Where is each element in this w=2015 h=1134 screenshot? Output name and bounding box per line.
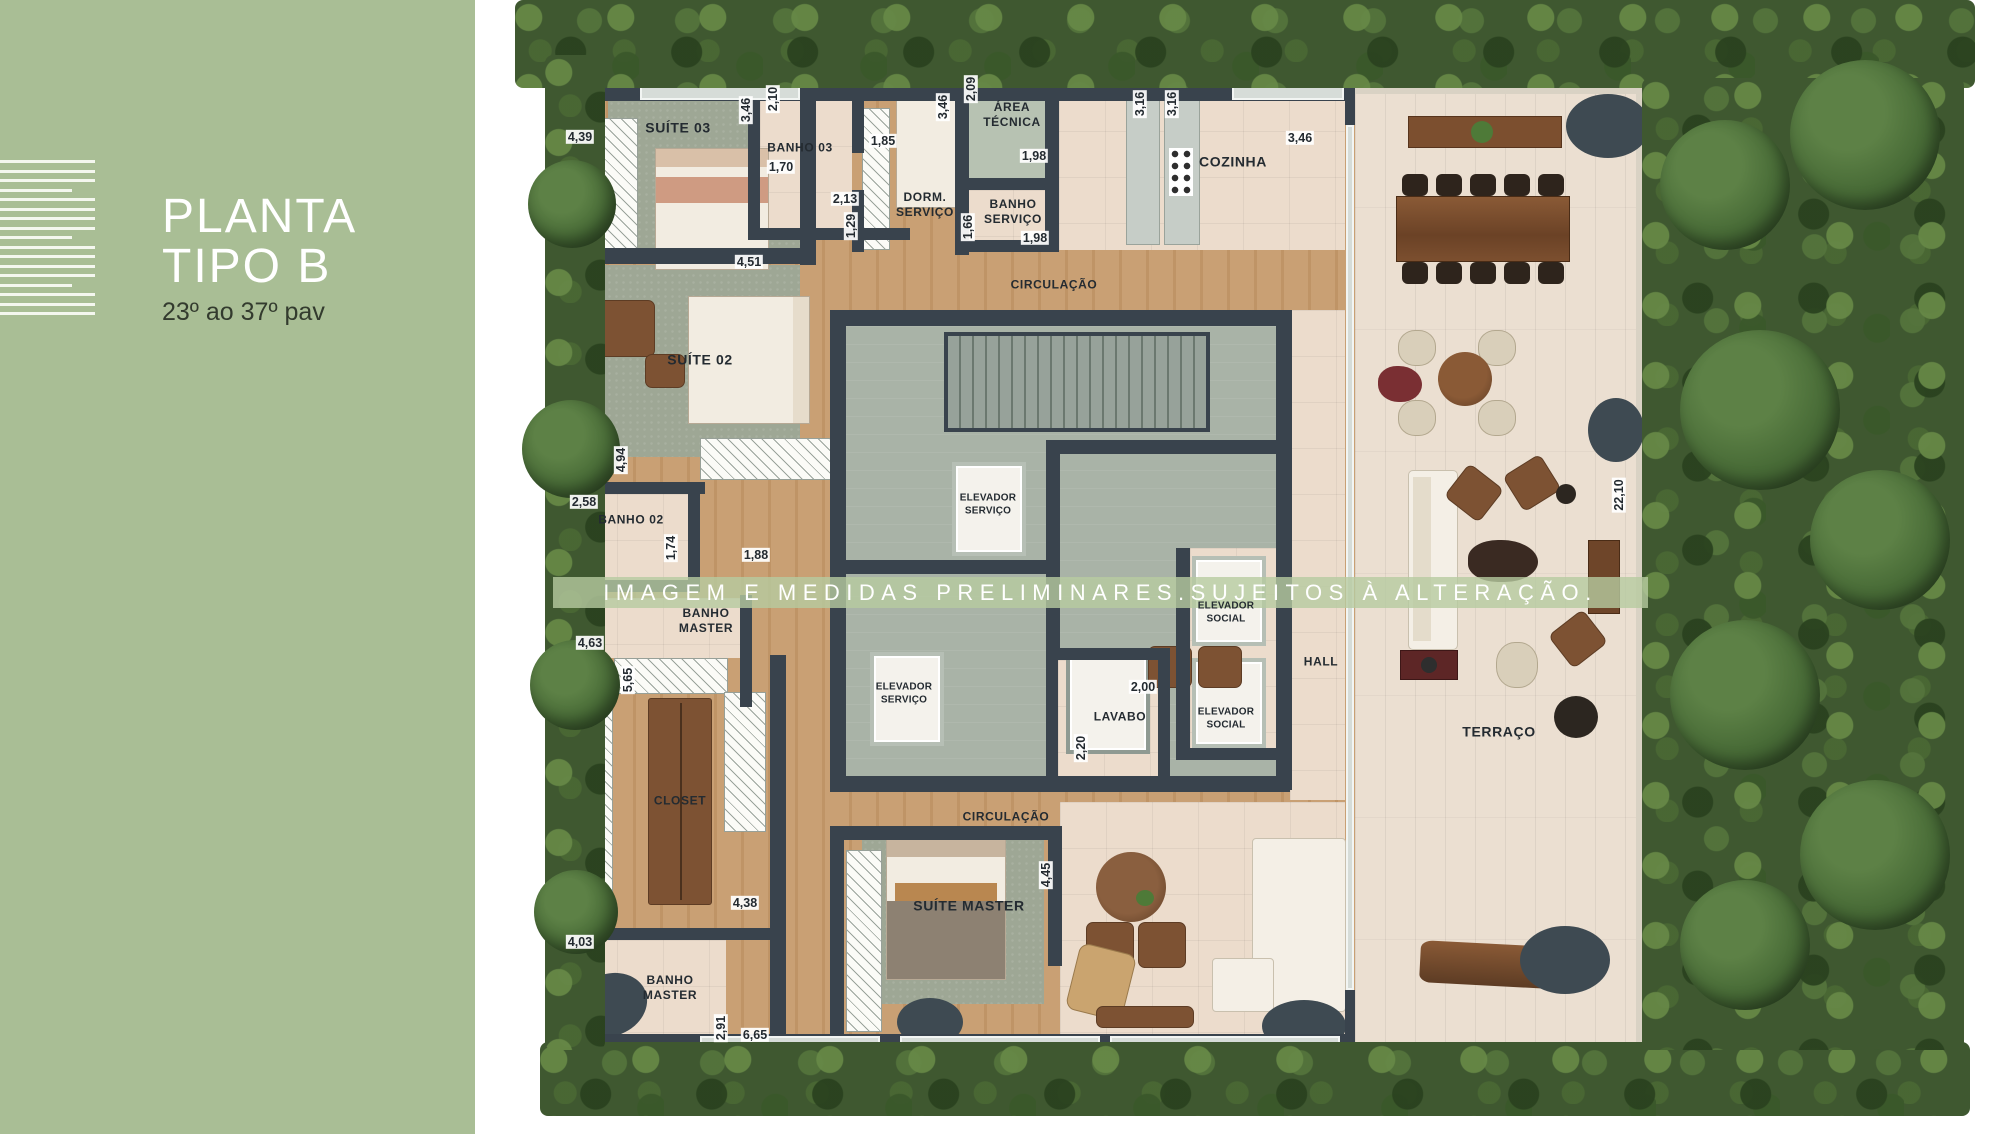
page: PLANTA TIPO B 23º ao 37º pav: [0, 0, 2015, 1134]
dimension-label: 3,16: [1133, 90, 1147, 118]
dimension-label: 4,94: [614, 446, 628, 474]
dimension-label: 3,46: [936, 93, 950, 121]
dimension-label: 4,03: [566, 935, 594, 949]
room-label-suite-03: SUÍTE 03: [645, 119, 711, 137]
room-label-terraco: TERRAÇO: [1462, 723, 1535, 741]
room-label-suite-02: SUÍTE 02: [667, 351, 733, 369]
dimension-label: 1,29: [844, 212, 858, 240]
dimension-label: 1,98: [1020, 149, 1048, 163]
room-label-closet: CLOSET: [654, 794, 706, 809]
room-label-elevador-servico-1: ELEVADOR SERVIÇO: [960, 493, 1016, 518]
dimension-label: 4,63: [576, 636, 604, 650]
dimension-label: 1,70: [767, 160, 795, 174]
room-label-banho-03: BANHO 03: [767, 141, 832, 156]
dimension-label: 4,38: [731, 896, 759, 910]
dimension-label: 3,46: [1286, 131, 1314, 145]
dimension-label: 2,10: [766, 85, 780, 113]
dimension-label: 22,10: [1612, 477, 1626, 512]
dimension-label: 2,20: [1074, 734, 1088, 762]
dimension-label: 3,16: [1165, 90, 1179, 118]
room-label-banho-02: BANHO 02: [598, 513, 663, 528]
dimension-label: 2,58: [570, 495, 598, 509]
dimension-label: 1,85: [869, 134, 897, 148]
dimension-label: 2,00: [1129, 680, 1157, 694]
room-label-banho-servico: BANHO SERVIÇO: [984, 197, 1042, 227]
dimension-label: 2,09: [964, 75, 978, 103]
room-label-circulacao-inferior: CIRCULAÇÃO: [963, 810, 1050, 825]
room-label-cozinha: COZINHA: [1199, 153, 1267, 171]
dimension-label: 2,91: [714, 1014, 728, 1042]
room-label-area-tecnica: ÁREA TÉCNICA: [983, 100, 1041, 130]
dimension-label: 4,51: [735, 255, 763, 269]
room-label-elevador-social-2: ELEVADOR SOCIAL: [1198, 707, 1254, 732]
room-label-banho-master-inferior: BANHO MASTER: [643, 973, 697, 1003]
dimension-label: 1,98: [1021, 231, 1049, 245]
labels-layer: SUÍTE 03BANHO 03DORM. SERVIÇOÁREA TÉCNIC…: [0, 0, 2015, 1134]
room-label-circulacao-superior: CIRCULAÇÃO: [1011, 278, 1098, 293]
room-label-hall: HALL: [1304, 655, 1338, 670]
dimension-label: 1,66: [961, 213, 975, 241]
room-label-lavabo: LAVABO: [1094, 710, 1147, 725]
dimension-label: 6,65: [741, 1028, 769, 1042]
dimension-label: 3,46: [739, 96, 753, 124]
room-label-dorm-servico: DORM. SERVIÇO: [896, 190, 954, 220]
dimension-label: 4,45: [1039, 861, 1053, 889]
dimension-label: 2,13: [831, 192, 859, 206]
dimension-label: 5,65: [621, 666, 635, 694]
room-label-elevador-social-1: ELEVADOR SOCIAL: [1198, 601, 1254, 626]
dimension-label: 1,88: [742, 548, 770, 562]
dimension-label: 4,39: [566, 130, 594, 144]
room-label-elevador-servico-2: ELEVADOR SERVIÇO: [876, 682, 932, 707]
room-label-suite-master: SUÍTE MASTER: [913, 897, 1024, 915]
dimension-label: 1,74: [664, 534, 678, 562]
room-label-banho-master-superior: BANHO MASTER: [679, 606, 733, 636]
